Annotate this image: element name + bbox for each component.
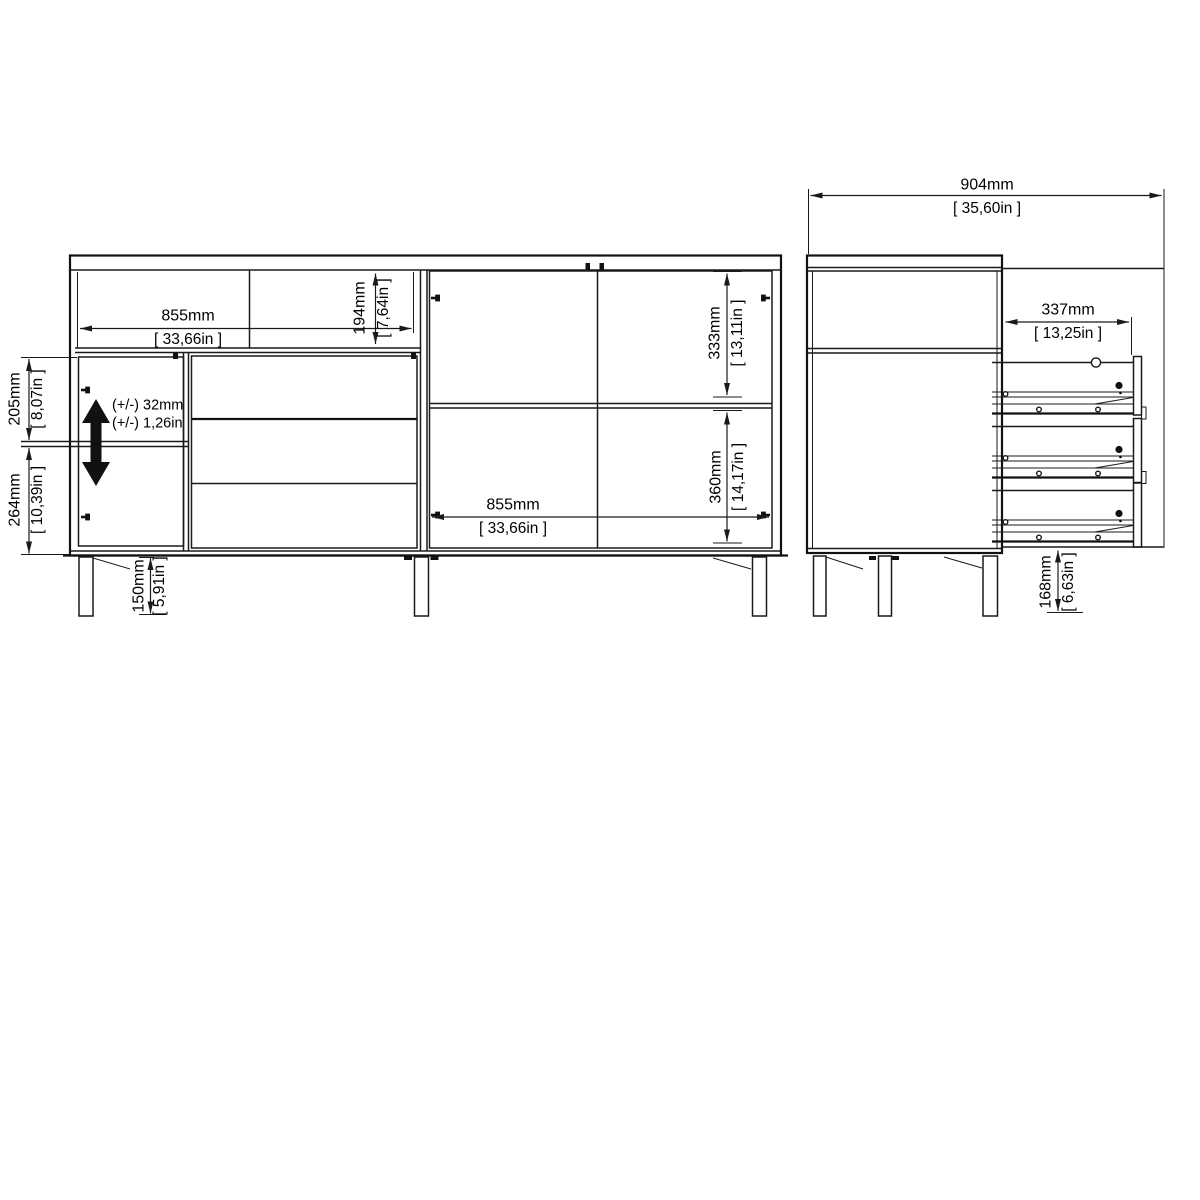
leg: [415, 557, 429, 616]
dim-front-leg-height-in: [ 5,91in ]: [152, 556, 168, 615]
drawer-slide-assembly: [992, 491, 1133, 542]
drawer-front-edge: [1134, 419, 1142, 483]
leg-bracket: [404, 556, 412, 560]
drawer-slide-assembly: [992, 427, 1133, 478]
adjustable-shelf-line: [21, 442, 188, 447]
door-pin: [586, 263, 591, 270]
leg-brace-line: [93, 558, 751, 569]
dim-side-leg-height-mm: 168mm: [1039, 555, 1056, 608]
dim-front-top-width-in: [ 33,66in ]: [154, 332, 222, 348]
side-band-bottom-lines: [807, 349, 1002, 354]
leg: [879, 556, 892, 616]
dimension-drawing-canvas: 855mm [ 33,66in ] 194mm [ 7,64in ] 205mm…: [0, 0, 1200, 1200]
shelf-bottom-panel-lines: [75, 348, 421, 353]
dim-extension-line: [809, 189, 1165, 547]
hinge-icon: [81, 514, 90, 521]
side-top-panel-lines: [807, 268, 1002, 272]
shelf-adjust-range-mm: (+/-) 32mm: [112, 398, 183, 413]
center-divider-panel: [421, 270, 428, 551]
dim-front-top-width-mm: 855mm: [161, 309, 214, 326]
technical-drawing-svg: [0, 0, 1200, 1200]
dim-side-depth-in: [ 35,60in ]: [953, 201, 1021, 217]
dim-front-opening-height-in: [ 7,64in ]: [376, 278, 392, 337]
dim-front-right-upper-mm: 333mm: [708, 306, 725, 359]
drawer-front-edge: [1134, 483, 1142, 547]
cam-fitting: [411, 353, 416, 360]
leg-bracket: [869, 556, 876, 560]
door-pin: [600, 263, 605, 270]
dim-side-drawer-extension-in: [ 13,25in ]: [1034, 326, 1102, 342]
cam-fitting: [173, 353, 178, 360]
leg-bracket: [431, 556, 439, 560]
dim-side-leg-height-in: [ 6,63in ]: [1061, 552, 1077, 611]
dim-front-right-upper-in: [ 13,11in ]: [730, 300, 746, 367]
drawer-slide-assembly: [992, 363, 1133, 414]
dim-front-left-upper-mm: 205mm: [8, 372, 25, 425]
dim-front-bottom-width-in: [ 33,66in ]: [479, 521, 547, 537]
dim-front-left-lower-mm: 264mm: [8, 473, 25, 526]
drawer-stack: [192, 356, 418, 548]
hinge-icon: [81, 387, 90, 394]
leg: [814, 556, 827, 616]
dim-side-drawer-extension-mm: 337mm: [1041, 303, 1094, 320]
drawer-front-edge: [1134, 357, 1142, 416]
dim-front-bottom-width-mm: 855mm: [486, 498, 539, 515]
dim-front-left-upper-in: [ 8,07in ]: [30, 369, 46, 428]
leg: [753, 557, 767, 616]
side-body-outline: [807, 256, 1002, 554]
hinge-icon: [761, 295, 770, 302]
dim-front-right-lower-in: [ 14,17in ]: [731, 443, 747, 511]
dim-front-left-lower-in: [ 10,39in ]: [30, 466, 46, 534]
right-shelf-lines: [430, 404, 773, 409]
dim-side-depth-mm: 904mm: [960, 178, 1013, 195]
side-inner-edge-lines: [813, 271, 998, 548]
leg-bracket: [892, 556, 899, 560]
leg: [79, 557, 93, 616]
shelf-adjust-range-in: (+/-) 1,26in: [112, 416, 183, 431]
hinge-icon: [431, 295, 440, 302]
dim-front-right-lower-mm: 360mm: [709, 450, 726, 503]
drawer-knob-hole: [1091, 358, 1100, 367]
dim-front-leg-height-mm: 150mm: [132, 559, 149, 612]
dim-front-opening-height-mm: 194mm: [353, 281, 370, 334]
side-view: [807, 256, 1165, 617]
leg-brace-line: [826, 557, 982, 569]
shelf-adjust-arrow-icon: [82, 399, 110, 486]
leg: [983, 556, 998, 616]
